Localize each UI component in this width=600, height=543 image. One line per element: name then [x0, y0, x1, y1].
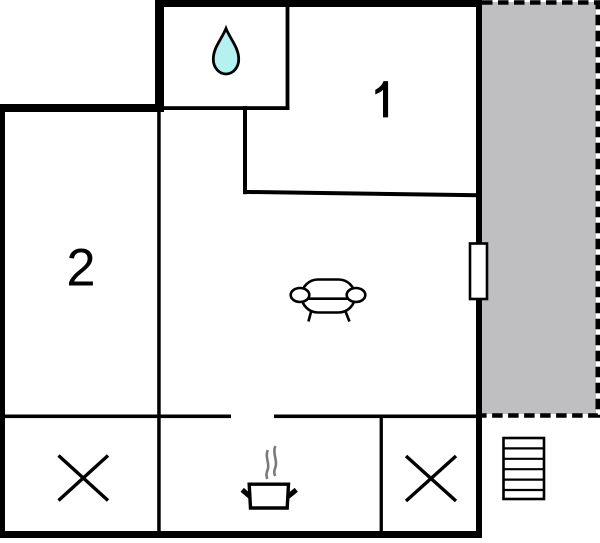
- svg-text:2: 2: [66, 238, 95, 297]
